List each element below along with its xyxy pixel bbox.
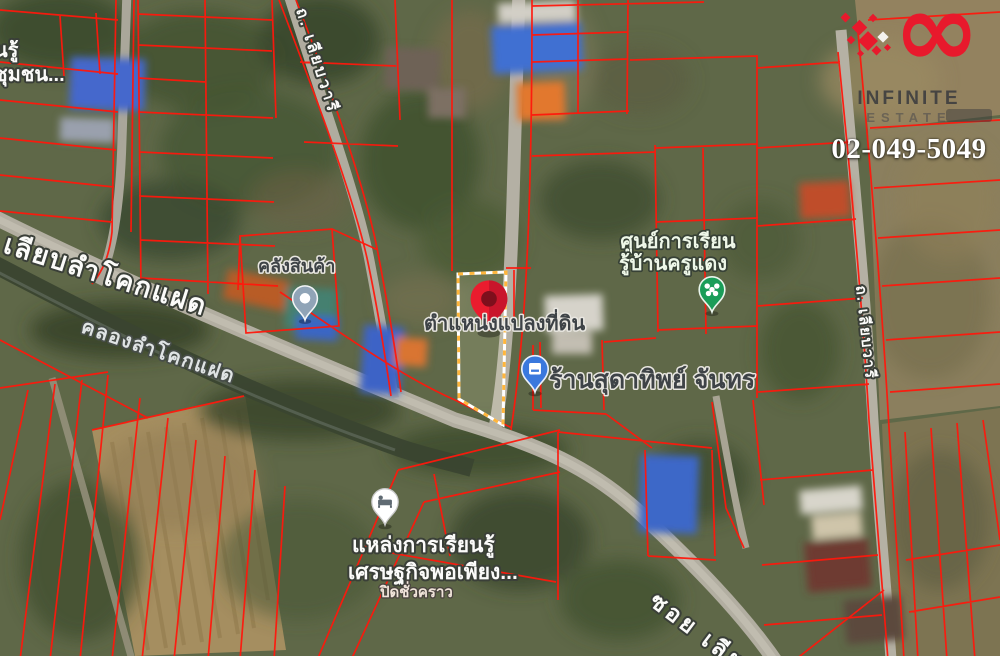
watermark: ∞ INFINITE ESTATE 02-049-5049 — [824, 6, 994, 166]
label-closed: ปิดชั่วคราว — [379, 581, 453, 601]
label-plot-position: ตำแหน่งแปลงที่ดิน — [424, 308, 586, 335]
label-sufficiency-1: แหล่งการเรียนรู้ — [352, 533, 495, 559]
label-learning-center-1: ศูนย์การเรียน — [620, 230, 735, 255]
label-warehouse: คลังสินค้า — [258, 256, 335, 276]
label-shop: ร้านสุดาทิพย์ จันทร — [549, 365, 756, 396]
label-learning-center-2: รู้บ้านครูแดง — [619, 252, 727, 277]
map-canvas[interactable]: นรู้ ชุมชน... เลียบลำโคกแฝด คลองลำโคกแฝด… — [0, 0, 1000, 656]
brand-name: INFINITE — [824, 88, 994, 110]
label-sufficiency-2: เศรษฐกิจพอเพียง... — [348, 560, 518, 586]
label-community-partial-1: นรู้ — [0, 39, 19, 64]
brand-subname: ESTATE — [824, 110, 994, 125]
label-community-partial-2: ชุมชน... — [0, 64, 65, 87]
brand-tagline-chip — [946, 109, 992, 122]
infinity-logo-icon: ∞ — [893, 0, 976, 82]
phone-number: 02-049-5049 — [824, 133, 994, 166]
